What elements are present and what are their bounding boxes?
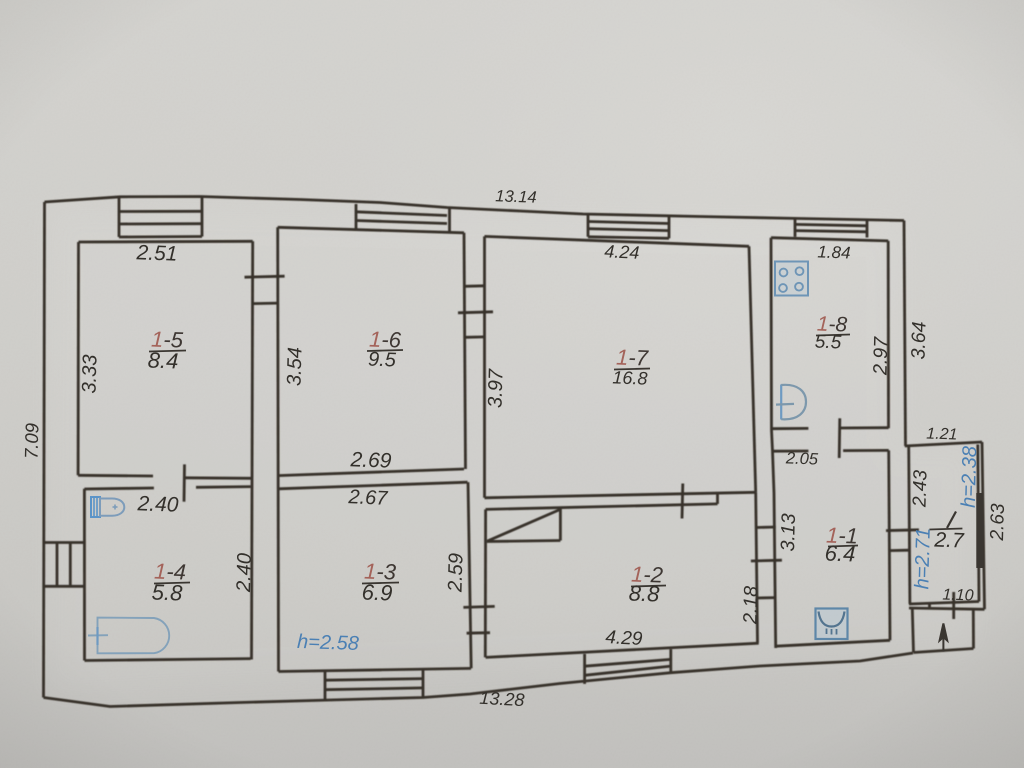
svg-text:h=2.58: h=2.58 xyxy=(297,631,359,655)
svg-text:7.09: 7.09 xyxy=(21,423,43,460)
svg-text:8.4: 8.4 xyxy=(147,347,178,373)
svg-text:1.10: 1.10 xyxy=(942,586,974,604)
svg-text:2.05: 2.05 xyxy=(785,449,820,468)
svg-text:2.40: 2.40 xyxy=(233,553,256,593)
svg-text:4.24: 4.24 xyxy=(604,241,640,263)
svg-text:9.5: 9.5 xyxy=(368,349,397,372)
svg-text:3.97: 3.97 xyxy=(484,368,507,408)
svg-text:16.8: 16.8 xyxy=(612,367,648,388)
svg-text:5.5: 5.5 xyxy=(814,332,842,354)
svg-text:13.14: 13.14 xyxy=(495,187,537,206)
svg-text:2.67: 2.67 xyxy=(347,486,389,510)
svg-text:6.4: 6.4 xyxy=(824,540,855,566)
svg-text:2.97: 2.97 xyxy=(869,336,892,377)
svg-text:3.54: 3.54 xyxy=(283,347,306,387)
svg-text:2.7: 2.7 xyxy=(933,528,965,552)
svg-text:1.84: 1.84 xyxy=(817,242,851,262)
svg-text:3.64: 3.64 xyxy=(908,321,931,360)
svg-text:13.28: 13.28 xyxy=(479,688,525,710)
svg-text:1-7: 1-7 xyxy=(616,344,649,370)
svg-text:2.43: 2.43 xyxy=(909,469,931,508)
svg-text:2.51: 2.51 xyxy=(135,241,178,265)
svg-text:2.63: 2.63 xyxy=(987,503,1009,542)
svg-text:2.69: 2.69 xyxy=(349,448,392,472)
svg-text:3.33: 3.33 xyxy=(78,354,101,394)
svg-text:1.21: 1.21 xyxy=(926,425,958,443)
svg-text:6.9: 6.9 xyxy=(361,579,392,605)
svg-text:3.13: 3.13 xyxy=(777,513,800,552)
svg-text:h=2.38: h=2.38 xyxy=(958,446,982,508)
svg-text:h=2.71: h=2.71 xyxy=(911,527,935,589)
svg-text:5.8: 5.8 xyxy=(151,579,183,605)
svg-text:2.59: 2.59 xyxy=(444,553,467,593)
svg-text:4.29: 4.29 xyxy=(605,627,643,650)
svg-text:2.40: 2.40 xyxy=(136,492,179,516)
svg-text:2.18: 2.18 xyxy=(739,586,762,626)
svg-text:8.8: 8.8 xyxy=(628,580,660,606)
